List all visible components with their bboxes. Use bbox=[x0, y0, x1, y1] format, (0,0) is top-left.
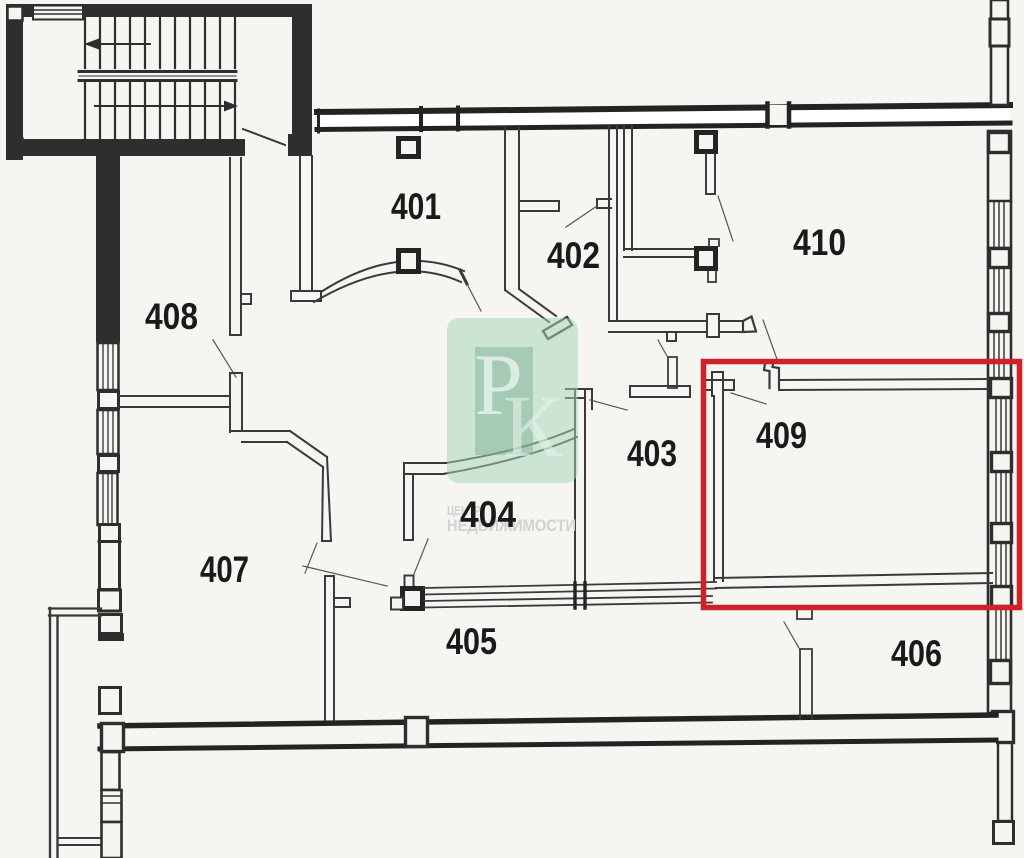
svg-text:407: 407 bbox=[200, 549, 249, 590]
svg-text:409: 409 bbox=[756, 415, 807, 456]
svg-text:403: 403 bbox=[627, 433, 677, 474]
svg-text:410: 410 bbox=[793, 222, 846, 263]
svg-text:406: 406 bbox=[891, 633, 942, 674]
svg-text:405: 405 bbox=[446, 621, 497, 662]
svg-text:404: 404 bbox=[460, 494, 516, 535]
svg-text:408: 408 bbox=[145, 296, 198, 337]
svg-text:К: К bbox=[503, 378, 563, 476]
svg-text:402: 402 bbox=[547, 235, 600, 276]
svg-text:401: 401 bbox=[391, 186, 441, 227]
